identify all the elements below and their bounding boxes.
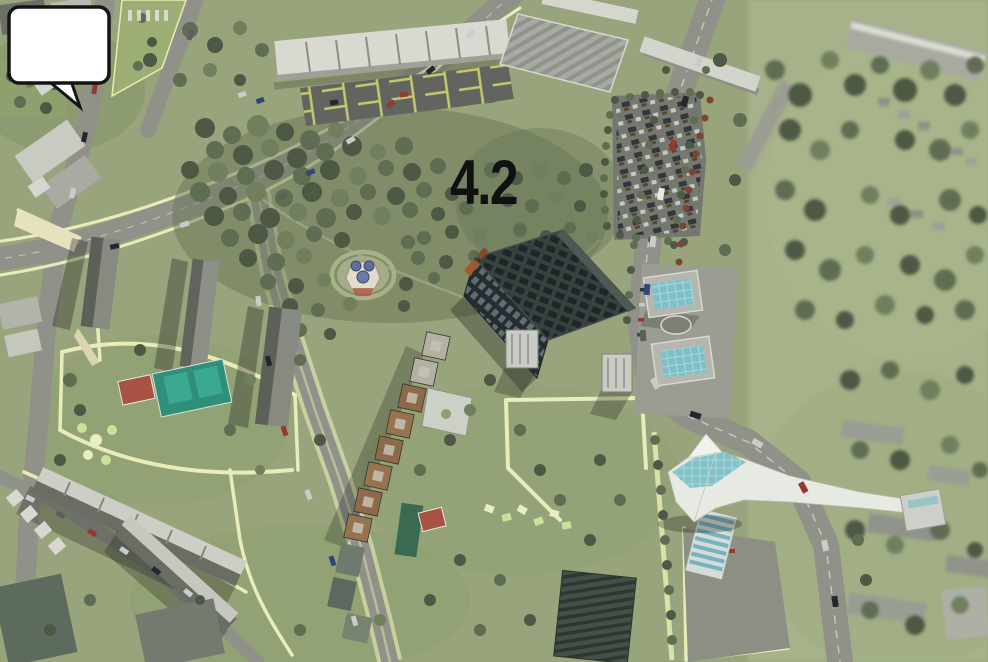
parking-northeast [600, 88, 706, 246]
dark-ribbed-building [554, 570, 637, 662]
church-dome [351, 261, 361, 271]
map-canvas [0, 0, 988, 662]
bridge-landing [900, 489, 946, 531]
aerial-district-render: 4.2 [0, 0, 988, 662]
marker-callout[interactable] [0, 0, 120, 118]
marker-bubble [9, 7, 109, 83]
church-dome [364, 261, 374, 271]
marker-label[interactable]: 4.2 [442, 146, 525, 220]
church-dome [357, 271, 369, 283]
